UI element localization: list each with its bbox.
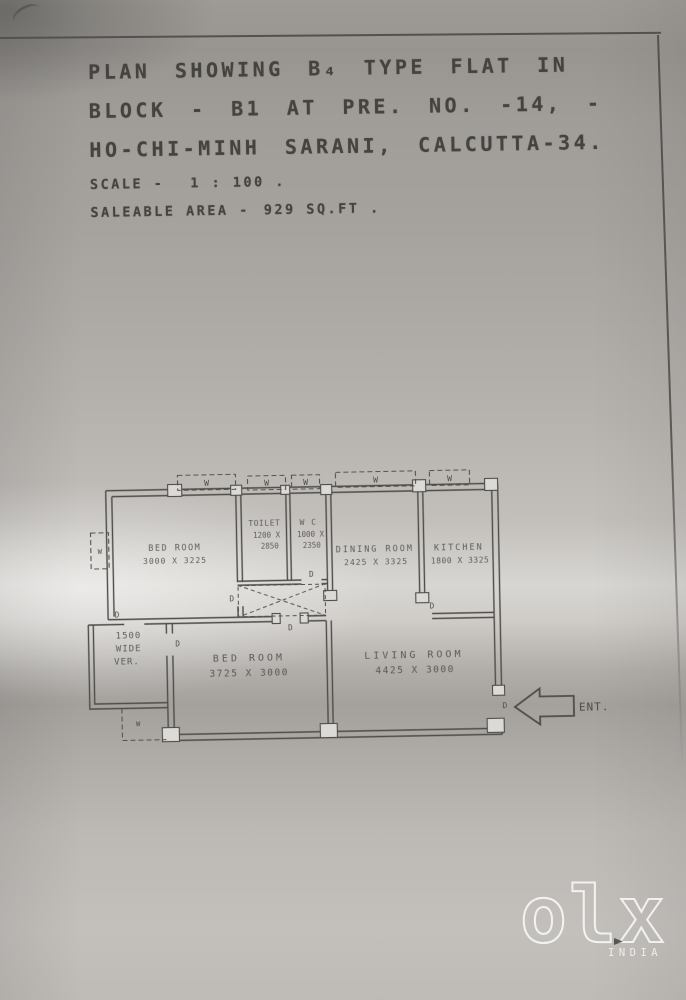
room-dims-label: 2425 X 3325 <box>344 557 408 567</box>
sheet-border-top-line <box>0 32 661 39</box>
room-toilet: TOILET 1200 X 2850 <box>248 518 281 551</box>
window-label: W <box>264 479 269 488</box>
sheet-border-right-line <box>657 35 683 770</box>
room-dims-label: 3725 X 3000 <box>209 667 289 680</box>
room-dining: DINING ROOM 2425 X 3325 <box>336 544 415 567</box>
walls <box>86 483 503 742</box>
olx-india-label: INDIA <box>608 947 662 959</box>
room-name-label: BED ROOM <box>213 652 285 664</box>
window-label: W <box>204 479 209 488</box>
scale-row: SCALE -1 : 100 . <box>90 169 606 193</box>
room-name-label: VER. <box>114 657 140 667</box>
title-block: PLAN SHOWING B₄ TYPE FLAT IN BLOCK - B1 … <box>88 52 606 221</box>
room-verandah: 1500 WIDE VER. <box>114 631 142 668</box>
room-dims-label: 2350 <box>303 541 322 550</box>
room-labels: BED ROOM 3000 X 3225 TOILET 1200 X 2850 … <box>111 514 491 681</box>
room-dims-label: 3000 X 3225 <box>143 556 207 566</box>
room-name-label: DINING ROOM <box>336 544 414 556</box>
entrance-arrow-icon <box>515 688 575 725</box>
window-label: W <box>373 476 378 485</box>
room-name-label: KITCHEN <box>434 543 484 554</box>
entrance: ENT. <box>515 687 610 725</box>
plan-title-line-3: HO-CHI-MINH SARANI, CALCUTTA-34. <box>89 130 605 162</box>
door-marker: D <box>503 701 508 710</box>
room-dims-label: 1200 X <box>253 530 281 540</box>
floor-plan-svg: W W W W W W W D D D D D D D BED ROOM <box>77 447 635 772</box>
scale-value: 1 : 100 . <box>190 174 286 192</box>
room-name-label: TOILET <box>248 518 280 528</box>
plan-title-line-1: PLAN SHOWING B₄ TYPE FLAT IN <box>88 52 604 84</box>
area-row: SALEABLE AREA -929 SQ.FT . <box>90 197 606 221</box>
door-marker: D <box>288 623 293 632</box>
pen-scribble-mark <box>10 0 45 30</box>
room-name-label: BED ROOM <box>148 543 201 554</box>
room-name-label: 1500 <box>116 631 142 641</box>
area-label: SALEABLE AREA - <box>90 202 250 221</box>
window-label: W <box>136 720 141 728</box>
room-name-label: W C <box>300 518 318 527</box>
room-dims-label: 4425 X 3000 <box>375 664 455 677</box>
window-label: W <box>303 478 308 487</box>
olx-watermark: olx INDIA <box>516 878 686 1000</box>
window-label: W <box>447 474 452 483</box>
lobby-cross-marker <box>238 584 327 618</box>
room-bedroom-bottom: BED ROOM 3725 X 3000 <box>209 652 289 680</box>
room-kitchen: KITCHEN 1800 X 3325 <box>431 542 490 565</box>
room-living: LIVING ROOM 4425 X 3000 <box>364 649 464 677</box>
floor-plan-photo: PLAN SHOWING B₄ TYPE FLAT IN BLOCK - B1 … <box>0 0 686 1000</box>
door-marker: D <box>229 594 234 603</box>
room-dims-label: 1000 X <box>297 530 325 540</box>
entrance-label: ENT. <box>579 700 610 714</box>
room-name-label: LIVING ROOM <box>364 649 463 662</box>
window-labels: W W W W W W W <box>96 474 456 729</box>
plan-title-line-2: BLOCK - B1 AT PRE. NO. -14, - <box>89 91 605 123</box>
window-label: W <box>98 548 103 556</box>
room-name-label: WIDE <box>116 644 142 654</box>
area-value: 929 SQ.FT . <box>264 200 381 218</box>
room-bedroom-top: BED ROOM 3000 X 3225 <box>143 543 207 566</box>
room-wc: W C 1000 X 2350 <box>297 518 325 551</box>
door-marker: D <box>430 601 435 610</box>
floor-plan-drawing: W W W W W W W D D D D D D D BED ROOM <box>77 447 635 772</box>
door-marker: D <box>175 639 180 648</box>
door-marker: D <box>115 611 120 620</box>
window-marker <box>122 708 167 741</box>
door-marker: D <box>309 570 314 579</box>
window-markers <box>89 470 474 741</box>
scale-label: SCALE - <box>90 176 165 193</box>
room-dims-label: 1800 X 3325 <box>431 555 490 565</box>
room-dims-label: 2850 <box>261 541 280 550</box>
